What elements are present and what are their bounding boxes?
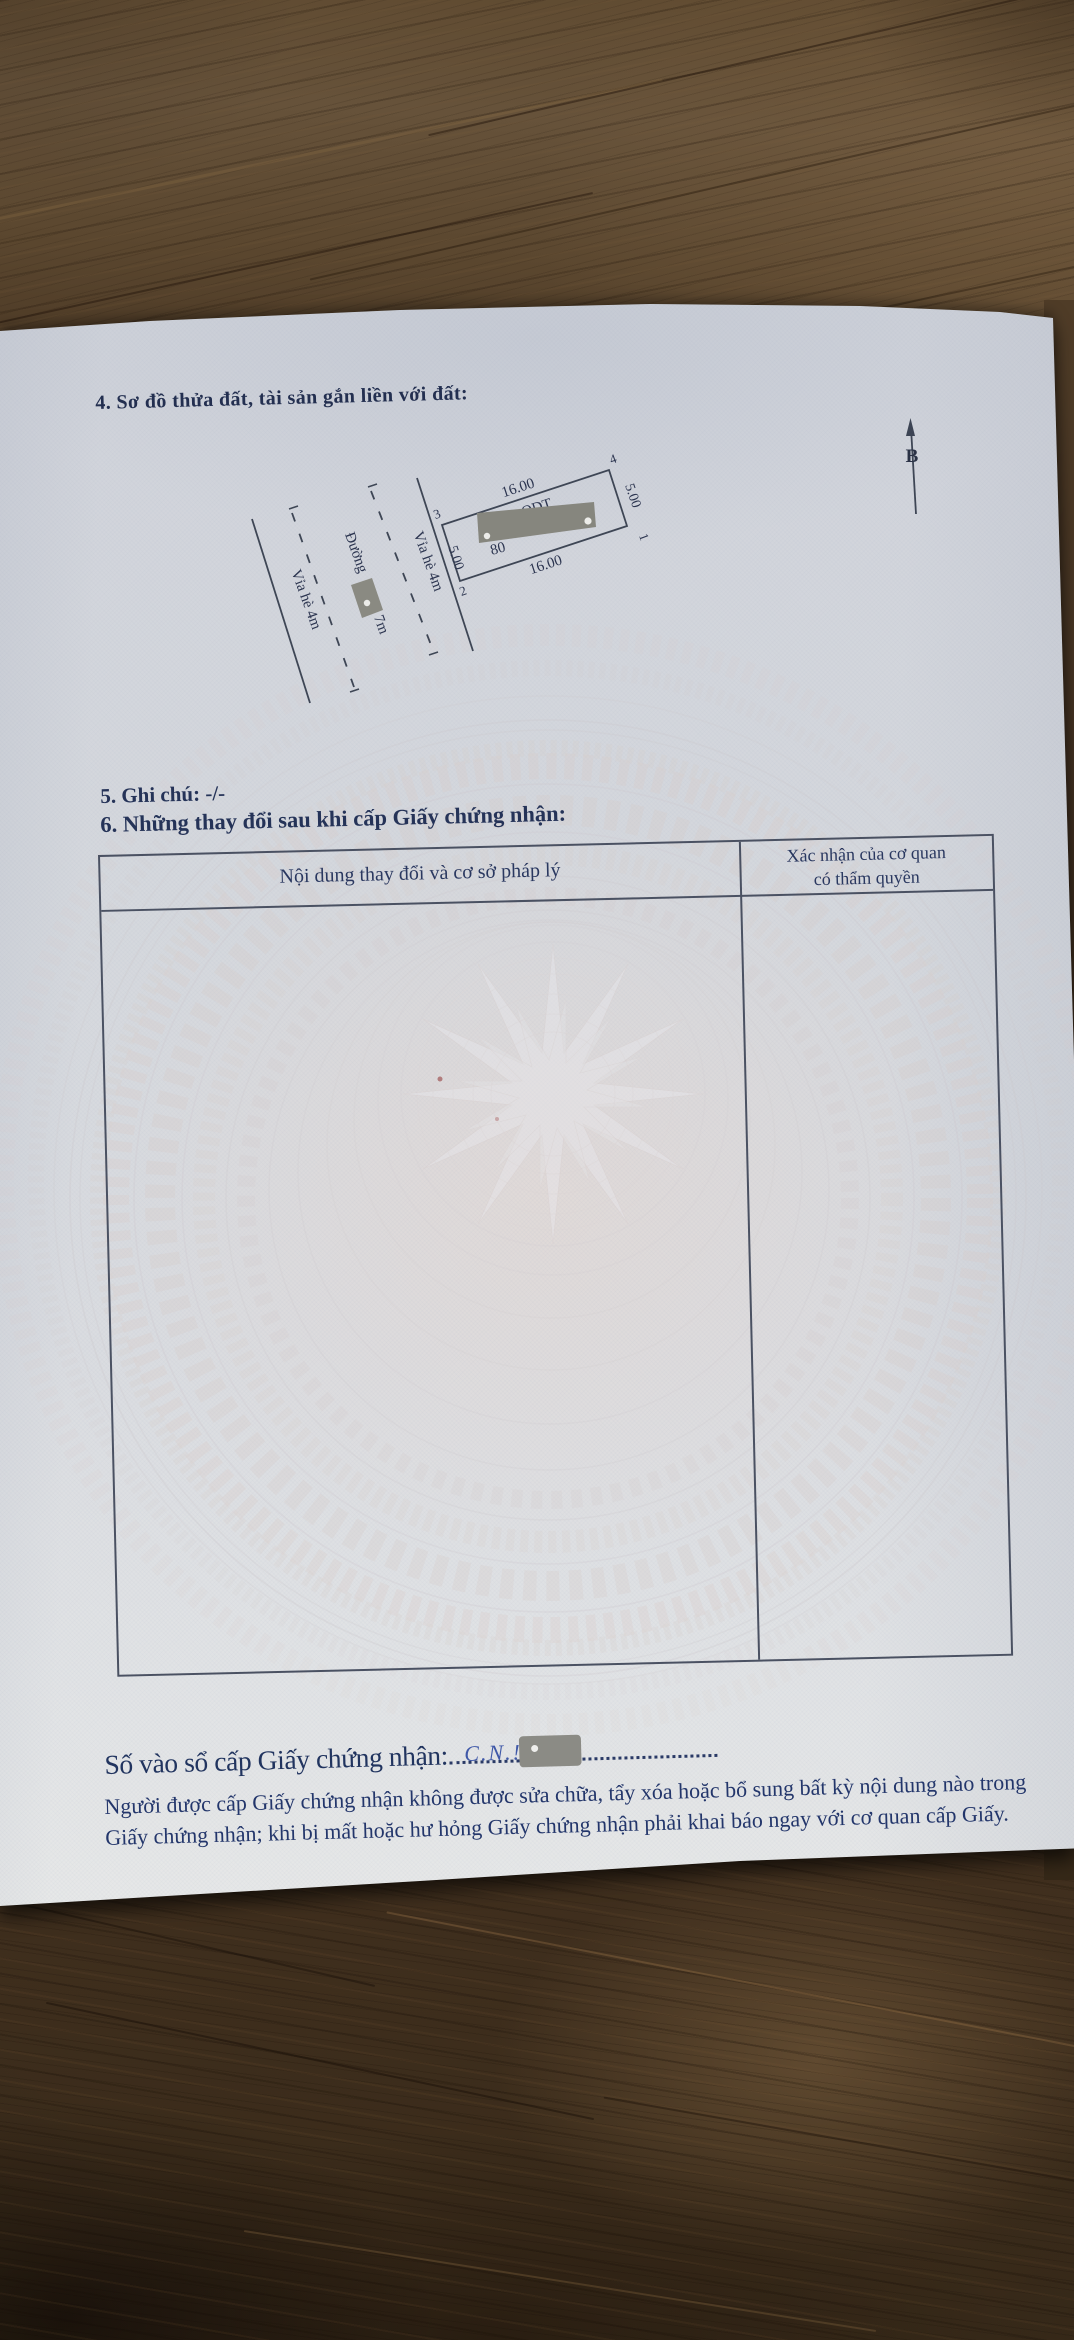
svg-text:Vỉa hè 4m: Vỉa hè 4m bbox=[410, 529, 447, 593]
svg-text:3: 3 bbox=[431, 506, 442, 522]
svg-text:2: 2 bbox=[457, 583, 468, 599]
svg-text:4: 4 bbox=[607, 450, 619, 466]
svg-text:16.00: 16.00 bbox=[500, 475, 537, 501]
svg-text:80: 80 bbox=[489, 539, 508, 558]
svg-text:Vỉa hè 4m: Vỉa hè 4m bbox=[288, 568, 325, 632]
svg-text:5.00: 5.00 bbox=[621, 482, 643, 510]
svg-text:1: 1 bbox=[636, 531, 652, 542]
svg-text:Đường: Đường bbox=[341, 530, 371, 575]
svg-text:B: B bbox=[906, 446, 919, 467]
svg-text:7m: 7m bbox=[370, 613, 392, 637]
svg-text:5.00: 5.00 bbox=[444, 544, 466, 572]
